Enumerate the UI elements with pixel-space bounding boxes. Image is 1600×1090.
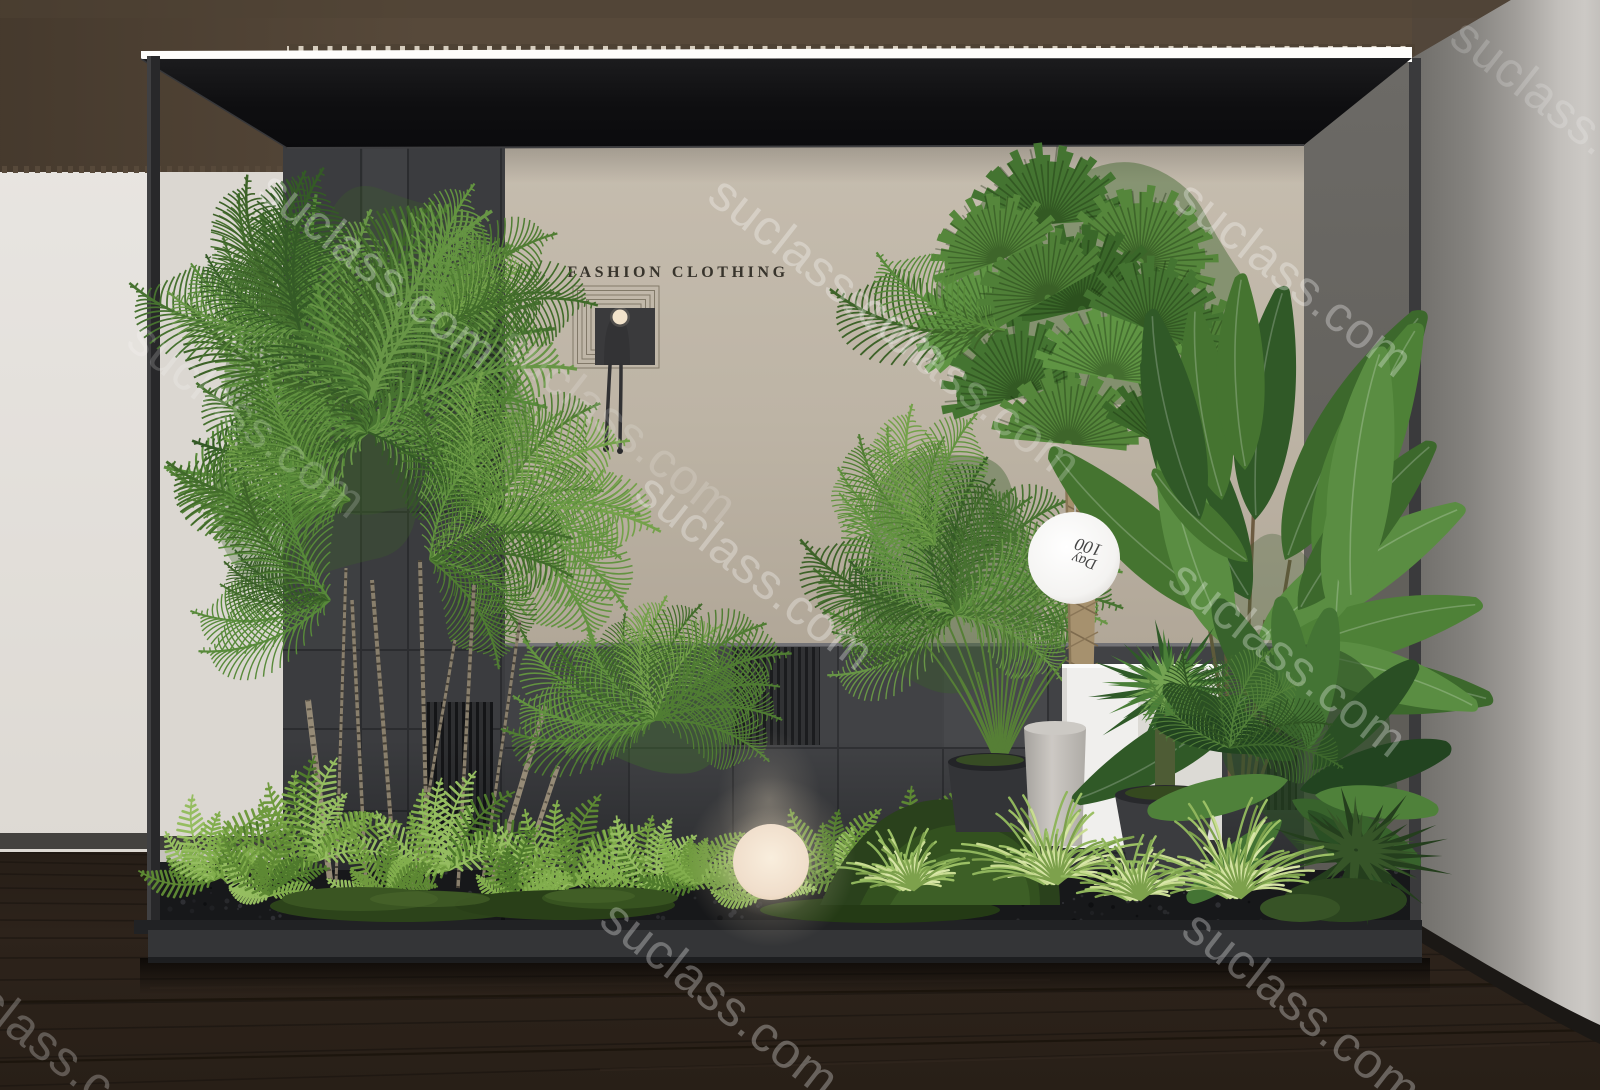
svg-text:FASHION CLOTHING: FASHION CLOTHING [567, 264, 788, 281]
